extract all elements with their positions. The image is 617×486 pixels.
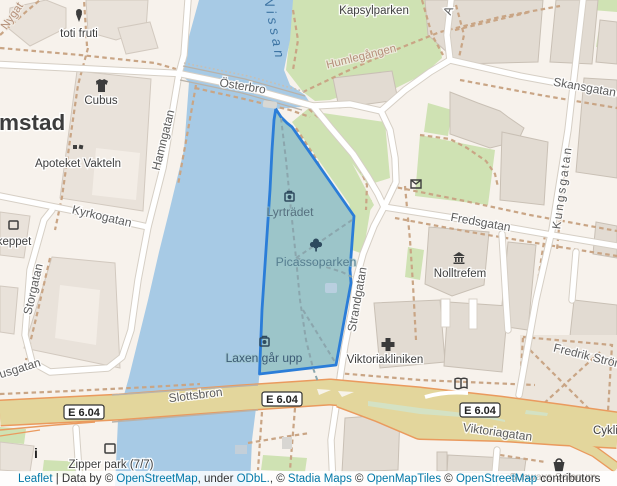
svg-text:Zipper park (7/7): Zipper park (7/7) bbox=[68, 459, 153, 471]
svg-text:Apoteket Vakteln: Apoteket Vakteln bbox=[35, 158, 121, 170]
svg-text:Lyrträdet: Lyrträdet bbox=[267, 205, 315, 219]
svg-text:Kapsylparken: Kapsylparken bbox=[339, 5, 409, 17]
svg-text:i: i bbox=[34, 445, 38, 461]
svg-text:E 6.04: E 6.04 bbox=[68, 407, 101, 419]
svg-text:keppet: keppet bbox=[0, 236, 32, 248]
svg-text:Leaflet | Data by © OpenStreet: Leaflet | Data by © OpenStreetMap, under… bbox=[18, 473, 601, 485]
svg-text:toti fruti: toti fruti bbox=[60, 28, 98, 40]
svg-text:Picassoparken: Picassoparken bbox=[276, 255, 357, 269]
svg-text:Viktoriakliniken: Viktoriakliniken bbox=[347, 354, 424, 366]
svg-text:Cubus: Cubus bbox=[84, 95, 117, 107]
svg-text:E 6.04: E 6.04 bbox=[464, 405, 497, 417]
svg-text:Laxen går upp: Laxen går upp bbox=[226, 351, 303, 365]
svg-text:Nolltrefem: Nolltrefem bbox=[434, 268, 486, 280]
svg-text:Halmstad: Halmstad bbox=[0, 110, 65, 135]
svg-text:E 6.04: E 6.04 bbox=[266, 394, 299, 406]
svg-text:Cykli: Cykli bbox=[593, 425, 617, 437]
